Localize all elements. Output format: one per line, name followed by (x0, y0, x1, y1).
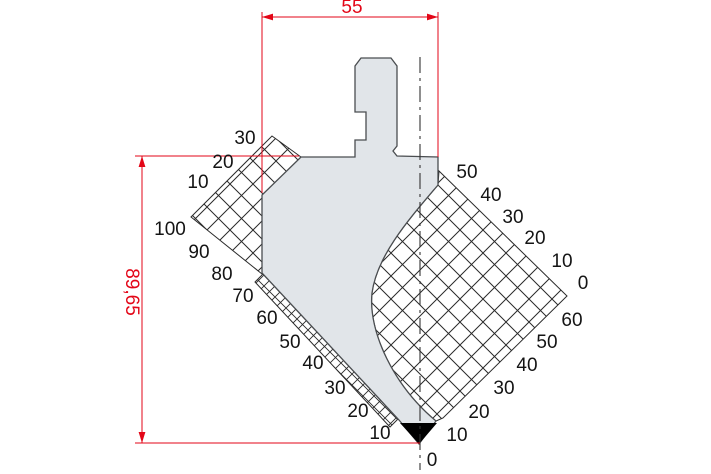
scale-label: 20 (347, 401, 368, 422)
scale-label: 30 (324, 378, 345, 399)
scale-label: 80 (211, 264, 232, 285)
height-dimension-value: 89,65 (121, 268, 142, 316)
scale-label: 10 (369, 423, 390, 444)
scale-label: 50 (456, 162, 477, 183)
arrow-right (427, 14, 438, 21)
technical-drawing-canvas: 55 89,65 30 20 10 100 90 80 70 60 50 40 … (0, 0, 711, 474)
scale-label: 40 (302, 353, 323, 374)
punch-profile-drawing: 55 89,65 30 20 10 100 90 80 70 60 50 40 … (0, 0, 711, 474)
arrow-down (139, 432, 146, 443)
scale-label: 20 (468, 402, 489, 423)
scale-label: 60 (561, 310, 582, 331)
scale-label-origin: 0 (427, 450, 438, 471)
arrow-left (262, 14, 273, 21)
scale-label: 100 (154, 219, 186, 240)
arrow-up (139, 156, 146, 167)
scale-label: 30 (234, 128, 255, 149)
scale-label: 10 (551, 251, 572, 272)
scale-label: 10 (446, 425, 467, 446)
scale-label: 30 (502, 207, 523, 228)
scale-label: 40 (480, 185, 501, 206)
scale-label: 10 (187, 172, 208, 193)
scale-label: 90 (188, 242, 209, 263)
scale-label: 70 (232, 286, 253, 307)
scale-label: 20 (524, 228, 545, 249)
punch-tip (400, 423, 437, 444)
scale-label: 20 (212, 152, 233, 173)
scale-label: 30 (493, 378, 514, 399)
width-dimension-value: 55 (341, 0, 362, 18)
scale-label: 40 (516, 355, 537, 376)
scale-label: 0 (578, 273, 589, 294)
scale-label: 50 (279, 332, 300, 353)
scale-label: 50 (536, 332, 557, 353)
scale-label: 60 (256, 308, 277, 329)
